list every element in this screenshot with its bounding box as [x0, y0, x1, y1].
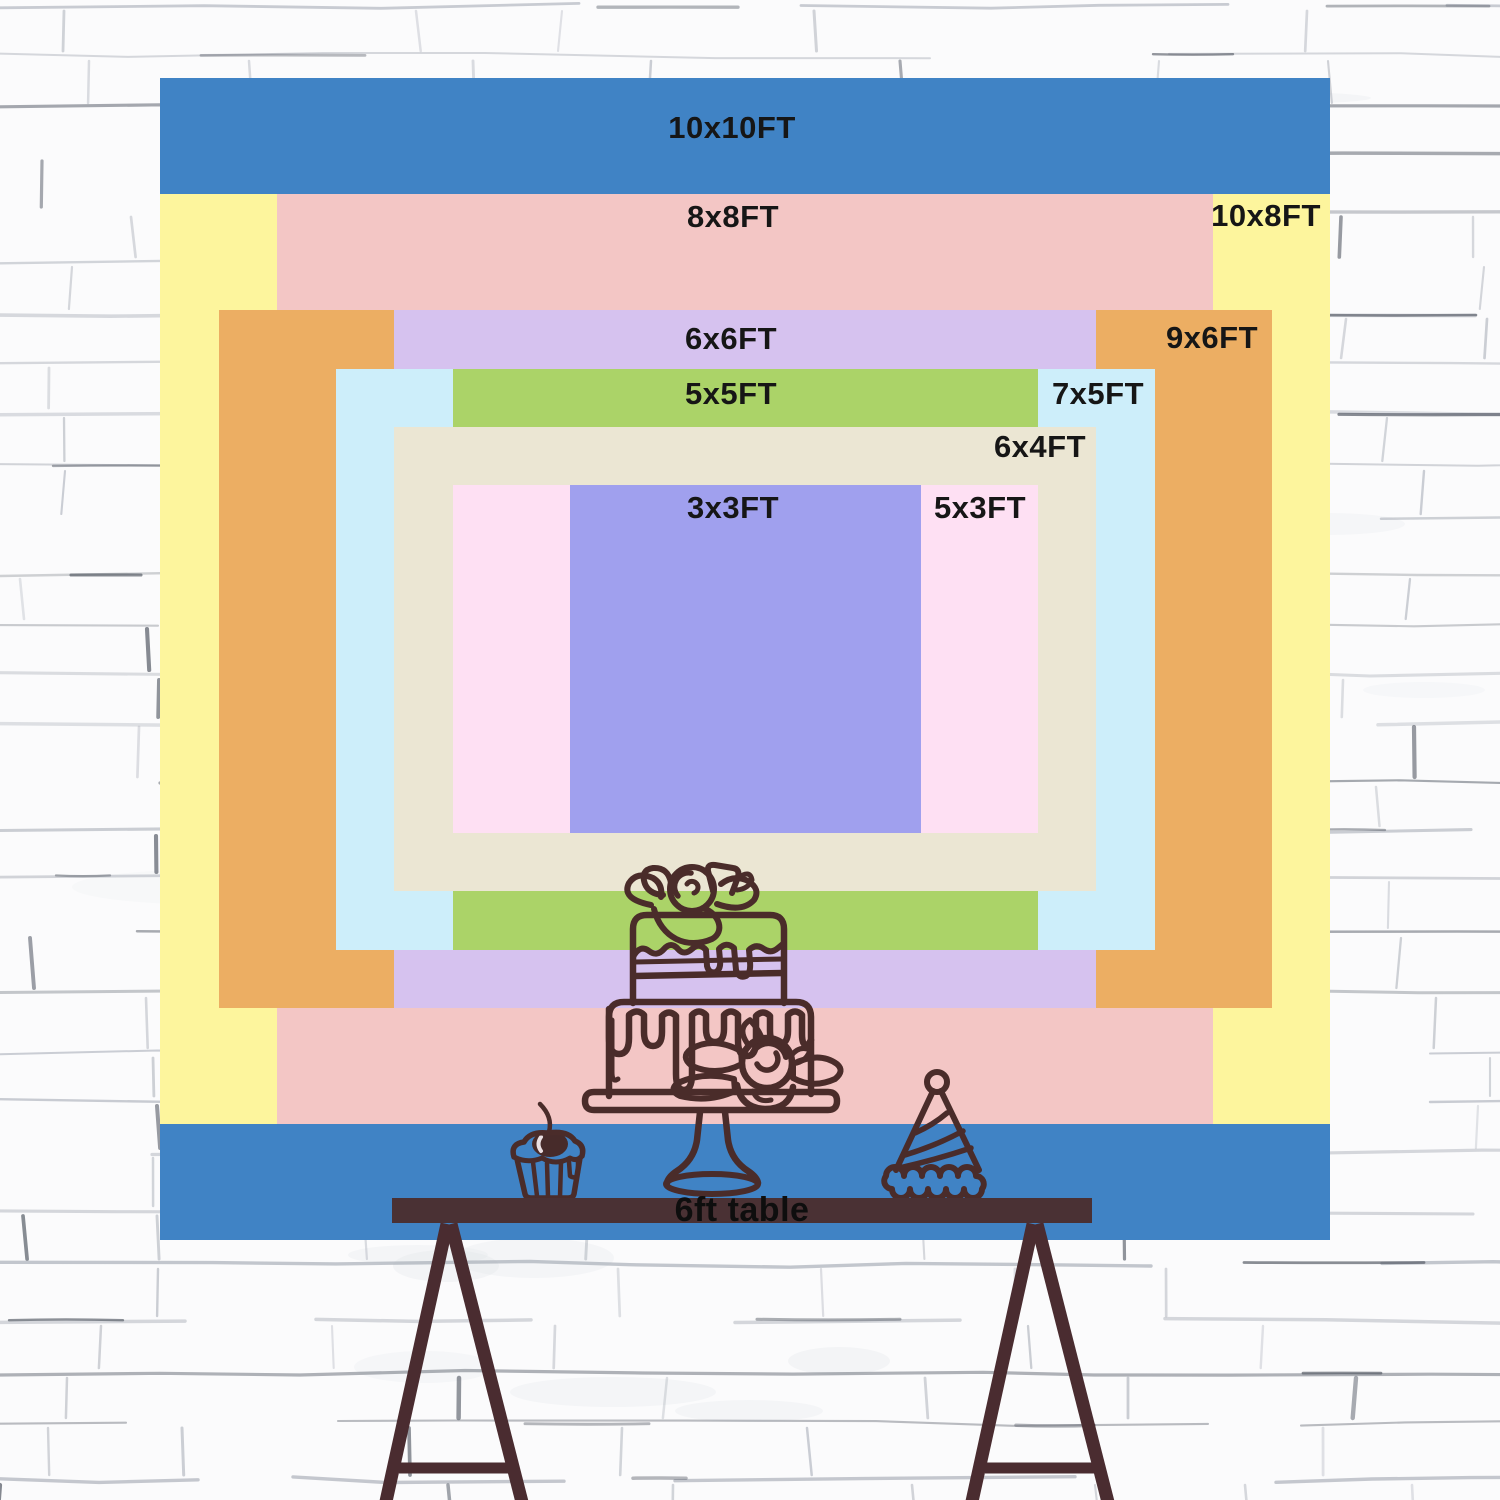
table-bar: 6ft table	[392, 1198, 1092, 1223]
party-illustration	[0, 0, 1500, 1500]
backdrop-size-chart: 10x10FT10x8FT8x8FT9x6FT6x6FT7x5FT5x5FT6x…	[0, 0, 1500, 1500]
cupcake	[513, 1104, 583, 1198]
tiered-cake	[609, 865, 841, 1109]
party-hat	[884, 1072, 984, 1198]
table-legs	[385, 1224, 1109, 1500]
table-label: 6ft table	[675, 1198, 810, 1223]
cake-stand	[585, 1092, 837, 1194]
